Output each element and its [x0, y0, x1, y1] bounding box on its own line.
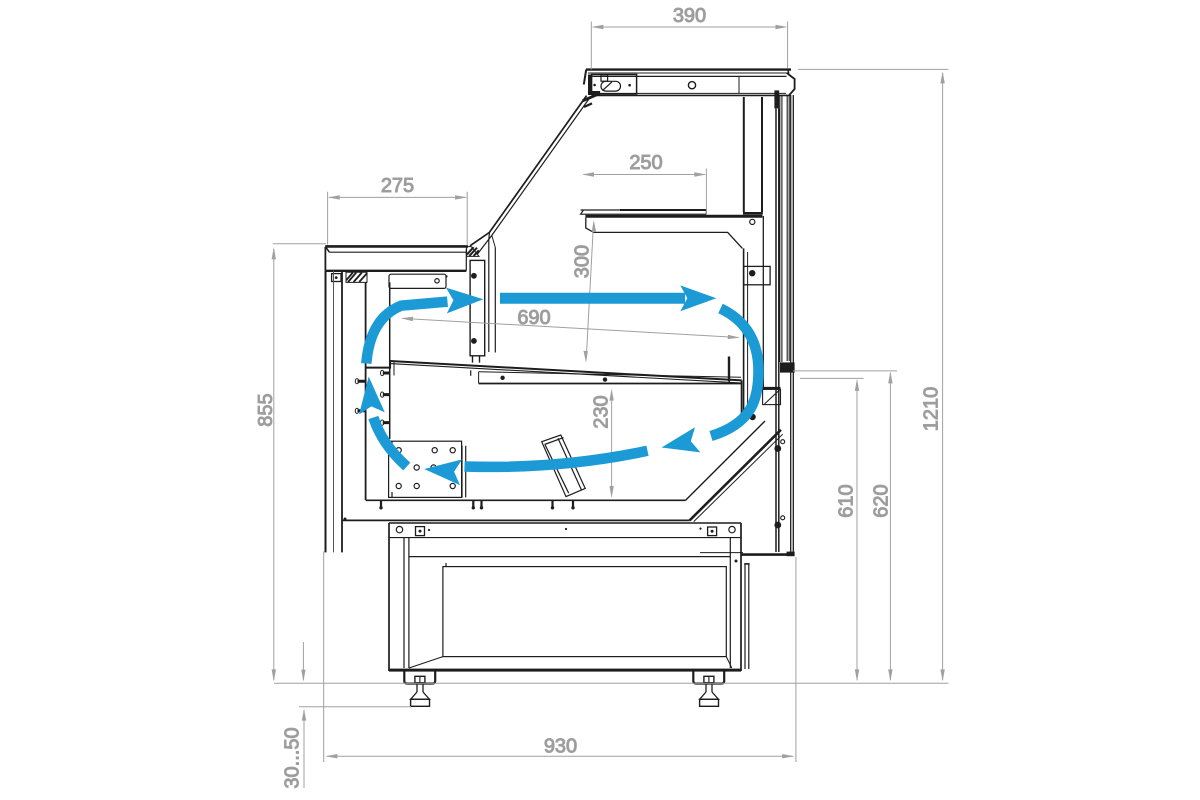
svg-text:300: 300 — [572, 245, 594, 278]
svg-text:690: 690 — [517, 307, 550, 329]
svg-text:855: 855 — [255, 393, 277, 426]
svg-text:610: 610 — [836, 484, 858, 517]
svg-text:275: 275 — [381, 175, 414, 197]
svg-text:390: 390 — [673, 5, 706, 27]
svg-text:620: 620 — [871, 484, 893, 517]
svg-text:1210: 1210 — [921, 387, 943, 432]
svg-text:230: 230 — [591, 395, 613, 428]
svg-text:930: 930 — [544, 736, 577, 758]
svg-text:30...50: 30...50 — [282, 727, 304, 788]
svg-text:250: 250 — [629, 152, 662, 174]
